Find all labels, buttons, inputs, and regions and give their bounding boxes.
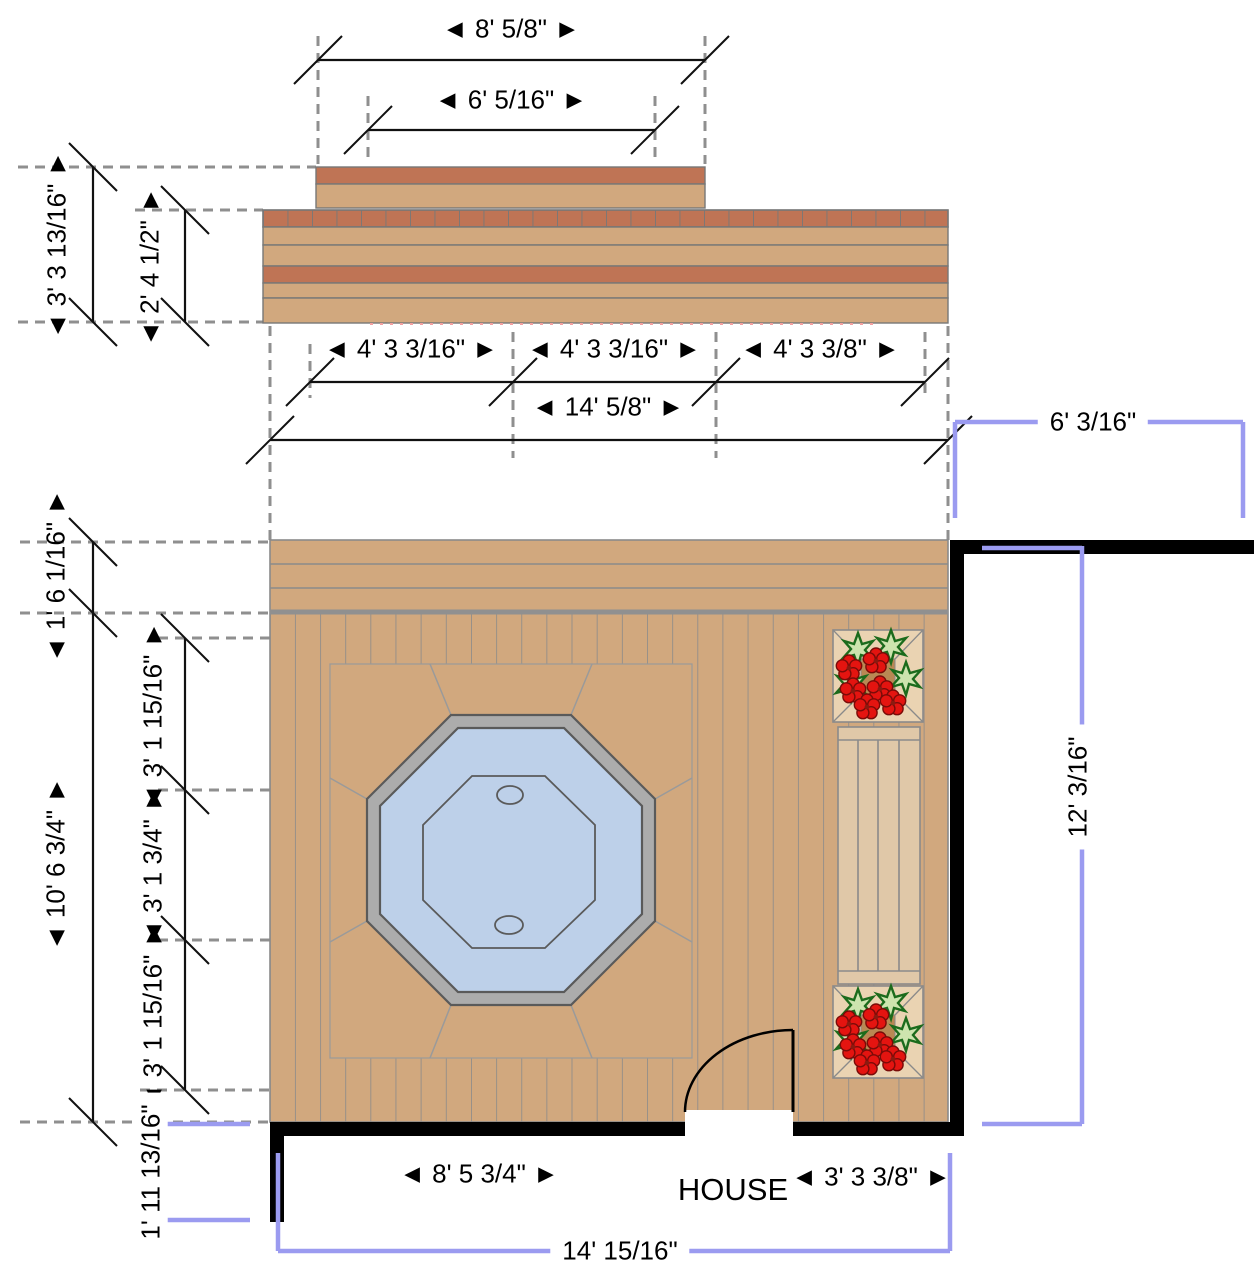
planter-top	[833, 630, 923, 722]
dim-top-outer: ◄ 8' 5/8" ►	[442, 15, 580, 44]
dim-house-bottom: 14' 15/16"	[550, 1235, 689, 1268]
steps-elevation	[263, 167, 948, 324]
dim-plan-left-c: ◄ 3' 1 15/16" ►	[139, 922, 168, 1111]
dim-mid-seg1: ◄ 4' 3 3/16" ►	[324, 335, 498, 364]
dim-house-wall-left: 1' 11 13/16"	[135, 1092, 168, 1251]
deck-plan-drawing	[0, 0, 1254, 1274]
dim-elev-left-inner: ◄ 2' 4 1/2" ►	[136, 187, 165, 347]
dim-plan-left-small: ◄ 1' 6 1/16" ►	[42, 489, 71, 663]
dim-mid-seg2: ◄ 4' 3 3/16" ►	[527, 335, 701, 364]
dim-plan-left-outer: ◄ 10' 6 3/4" ►	[42, 777, 71, 951]
dim-wall-bottom-right: ◄ 3' 3 3/8" ►	[791, 1163, 951, 1192]
hot-tub	[367, 715, 655, 1005]
dim-plan-left-a: ◄ 3' 1 15/16" ►	[139, 622, 168, 811]
deck-plan	[270, 540, 948, 1122]
dim-top-inner: ◄ 6' 5/16" ►	[435, 86, 587, 115]
hot-tub-water	[380, 728, 642, 992]
planter-bottom	[833, 986, 923, 1078]
bench	[838, 727, 920, 984]
dim-mid-total: ◄ 14' 5/8" ►	[532, 393, 684, 422]
dim-elev-left-outer: ◄ 3' 3 13/16" ►	[43, 151, 72, 340]
deck-plan-canvas: ◄ 8' 5/8" ► ◄ 6' 5/16" ► ◄ 3' 3 13/16" ►…	[0, 0, 1254, 1274]
dim-house-right: 12' 3/16"	[1062, 725, 1095, 850]
dim-wall-bottom-left: ◄ 8' 5 3/4" ►	[399, 1160, 559, 1189]
house-label: HOUSE	[678, 1173, 788, 1207]
dim-mid-seg3: ◄ 4' 3 3/8" ►	[740, 335, 900, 364]
dim-house-top-right: 6' 3/16"	[1038, 406, 1148, 439]
